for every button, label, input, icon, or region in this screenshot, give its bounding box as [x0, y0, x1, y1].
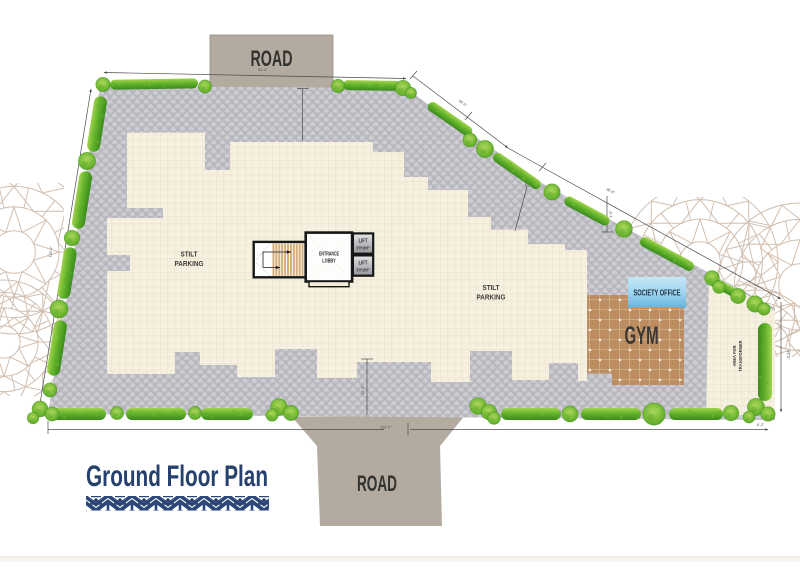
svg-text:SOCIETY OFFICE: SOCIETY OFFICE [634, 288, 681, 298]
svg-text:AREA FOR: AREA FOR [732, 345, 737, 367]
svg-text:34'-4": 34'-4" [258, 68, 268, 72]
svg-text:ENTRANCE: ENTRANCE [319, 252, 339, 258]
svg-text:5'0"x5'0": 5'0"x5'0" [357, 246, 370, 251]
svg-text:PARKING: PARKING [175, 259, 204, 268]
svg-text:LIFT: LIFT [359, 261, 368, 267]
svg-text:4'-0": 4'-0" [609, 210, 613, 218]
svg-text:6'-2": 6'-2" [757, 423, 765, 427]
svg-text:ROAD: ROAD [251, 46, 293, 71]
svg-text:PARKING: PARKING [477, 293, 506, 302]
svg-text:42'-0": 42'-0" [361, 385, 365, 395]
svg-text:STILT: STILT [181, 250, 198, 259]
svg-text:LOBBY: LOBBY [322, 259, 336, 265]
svg-text:LIFT: LIFT [359, 239, 368, 245]
svg-text:TRANSFORMER: TRANSFORMER [738, 340, 743, 372]
svg-text:41'-2": 41'-2" [786, 350, 790, 360]
svg-text:5'0"x5'0": 5'0"x5'0" [357, 268, 370, 273]
svg-text:STILT: STILT [483, 283, 500, 292]
svg-text:Ground Floor Plan: Ground Floor Plan [86, 460, 268, 493]
svg-text:ROAD: ROAD [357, 471, 397, 496]
svg-text:GYM: GYM [625, 322, 659, 350]
svg-text:101'-2": 101'-2" [380, 426, 392, 430]
